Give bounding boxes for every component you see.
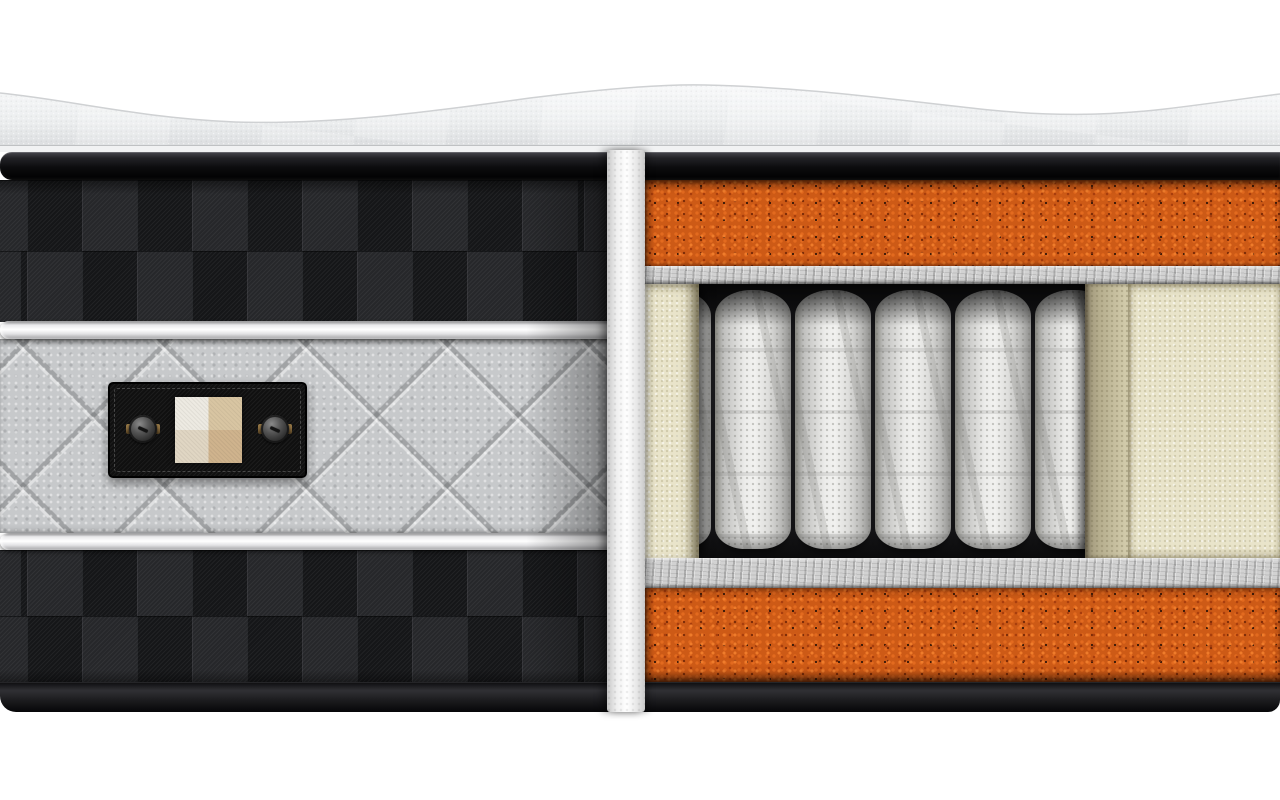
brand-label-tag <box>108 382 307 478</box>
pocket-spring <box>955 290 1031 549</box>
pocket-spring <box>715 290 791 549</box>
pocket-spring <box>795 290 871 549</box>
foam-encasement-right-rail-inner-face <box>1085 284 1128 558</box>
check-row <box>0 180 612 251</box>
label-fabric-swatch <box>175 397 242 463</box>
checkered-fabric-panel-bottom <box>0 550 612 682</box>
comfort-foam-layer-bottom <box>645 588 1280 682</box>
pocket-spring <box>875 290 951 549</box>
mattress-cutaway-render <box>0 0 1280 800</box>
felt-pad-top <box>645 266 1280 284</box>
rivet-slot <box>270 426 280 433</box>
felt-pad-bottom <box>645 558 1280 588</box>
quilted-gray-band <box>0 339 612 533</box>
spring-cavity <box>645 284 1280 558</box>
white-piping-top <box>0 321 612 339</box>
label-rivet-left <box>126 414 160 444</box>
foam-encasement-left-rail <box>645 284 699 558</box>
rivet-cap <box>129 415 157 443</box>
foam-encasement-right-rail-front-face <box>1128 284 1280 558</box>
label-rivet-right <box>258 414 292 444</box>
check-row <box>0 550 612 616</box>
cut-fabric-edge <box>607 150 645 712</box>
check-row <box>0 616 612 682</box>
white-piping-bottom <box>0 533 612 550</box>
rivet-cap <box>261 415 289 443</box>
checkered-fabric-panel-top <box>0 180 612 322</box>
pillow-top <box>0 0 1280 152</box>
mattress-cross-section <box>645 180 1280 682</box>
comfort-foam-layer-top <box>645 180 1280 266</box>
check-row <box>0 251 612 322</box>
rivet-slot <box>138 426 148 433</box>
